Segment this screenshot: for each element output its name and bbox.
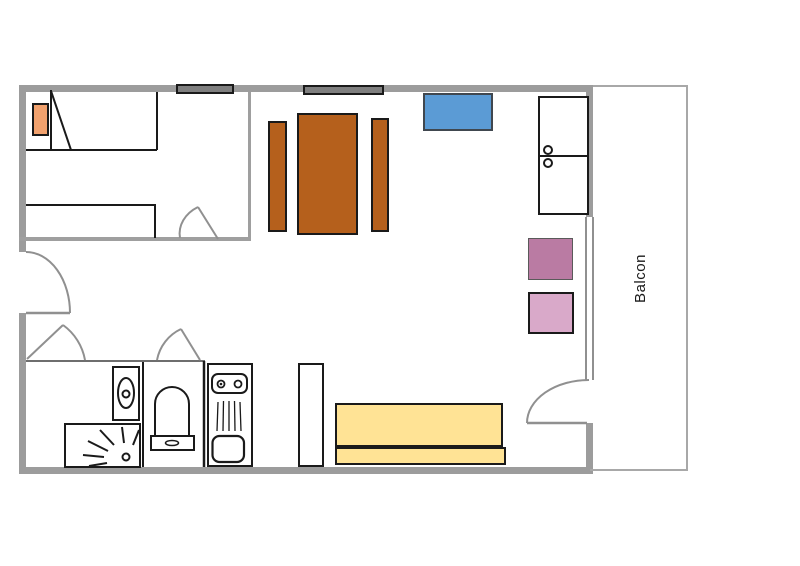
sofa-bed-footboard (335, 447, 506, 465)
wall-bottom (19, 467, 593, 474)
toilet (112, 366, 140, 421)
kitchen-sink-unit (207, 363, 253, 467)
bedroom-bottom-wall (19, 237, 251, 241)
shower (64, 423, 141, 468)
entry-door (26, 252, 70, 313)
chair-light-pink (528, 292, 574, 334)
dining-table (297, 113, 358, 235)
bench-left (268, 121, 287, 232)
bedroom-right-wall (248, 92, 251, 238)
balcony-door-swing (527, 380, 589, 423)
shower-room-door (27, 325, 85, 360)
sideboard (423, 93, 493, 131)
pillow (32, 103, 49, 136)
chair-dark-pink (528, 238, 573, 280)
washbasin-base (150, 435, 195, 451)
balcony: Balcon (593, 86, 687, 470)
living-room-window (303, 85, 384, 95)
wall-right-lower (586, 423, 593, 474)
bedroom-door (180, 207, 218, 239)
bedroom-window (176, 84, 234, 94)
wall-left-upper (19, 85, 26, 252)
washbasin-room-door (157, 329, 200, 360)
sofa-bed (335, 403, 503, 447)
cabinet-two-doors (538, 96, 589, 215)
single-bed (26, 205, 155, 238)
shelf (298, 363, 324, 467)
balcony-label: Balcon (632, 254, 649, 303)
bench-right (371, 118, 389, 232)
wall-left-lower (19, 313, 26, 474)
apartment-floor-plan: Balcon (0, 0, 800, 566)
